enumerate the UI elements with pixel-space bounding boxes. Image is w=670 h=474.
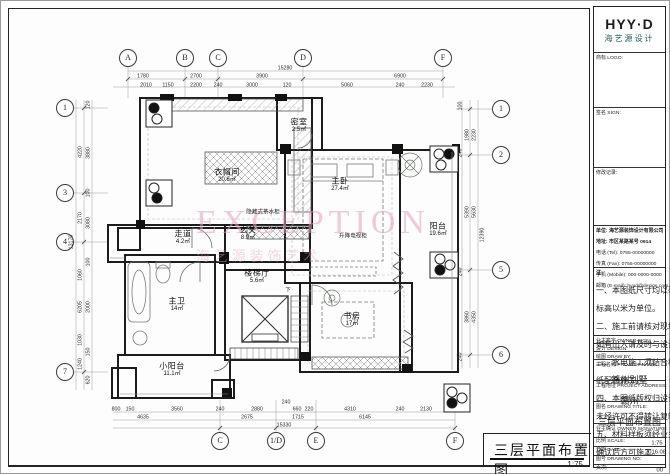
tb-company-lines: 单位: 海艺源装饰设计有限公司地址: 市区某路某号 0914 [596,227,663,249]
room-label: 阳台 19.6㎡ [428,221,449,238]
dim-label: 240 [457,268,463,277]
dim-label: 12390 [479,228,485,243]
tb-sign-row: 签名 SIGN: [594,108,665,168]
room-area: 20.6㎡ [216,177,238,184]
grid-bubble: E [307,432,325,450]
room-area: 5.6㎡ [246,278,268,285]
grid-bubble: C [209,49,227,67]
dim-label: 1150 [162,82,173,88]
dim-label: 2230 [471,129,477,141]
room-label: 衣帽间 20.6㎡ [214,167,240,184]
dim-label: 660 [293,406,302,412]
room-name: 楼梯厅 [244,268,270,277]
grid-bubble: D [294,49,312,67]
tb-project-name: 工程名称 PROJECT NAME: 赣州别墅 [594,360,665,381]
room-name: 走道 [175,229,192,238]
logo-text: HYY·D [596,16,663,32]
room-name: 密室 [291,117,308,126]
dim-label: 220 [305,406,314,412]
dim-label: 15330 [277,422,292,428]
dim-label: 6900 [394,73,406,79]
dim-label: 4220 [77,146,83,158]
dim-label: 3560 [171,406,183,412]
dim-label: 240 [396,82,405,88]
dim-label: 120 [283,82,292,88]
plan-title-box: 三层平面布置图 1:75 [483,433,591,467]
dim-label: 100 [457,102,463,111]
grid-bubble: A [119,49,137,67]
dim-label: 4635 [137,414,149,420]
tb-owner-sign-row: 业主签字 OWNER SIGN: [594,336,665,344]
dim-label: 2675 [241,414,253,420]
dim-label: 2010 [140,82,152,88]
room-name: 书房 [344,311,361,320]
dim-label: 5060 [341,82,353,88]
room-name: 玄关 [240,225,257,234]
dim-label: 2130 [420,406,432,412]
tb-contact: 单位: 海艺源装饰设计有限公司地址: 市区某路某号 0914 电话 (Tel):… [594,226,665,268]
room-name: 小阳台 [159,361,185,370]
dim-label: 2200 [190,82,202,88]
dim-label: 15280 [278,65,293,71]
room-area: 11.1㎡ [161,371,183,378]
room-label: 书房 17㎡ [344,311,361,328]
room-area: 27.4㎡ [331,186,349,193]
dim-label: 100 [85,189,91,198]
watermark-cjk: 海 艺 源 装 饰 艺 术 [196,246,436,266]
drawing-sheet: EXCEPTION 海 艺 源 装 饰 艺 术 ABCDFC1/DEF13471… [0,0,670,474]
dim-label: 1780 [137,73,149,79]
room-name: 衣帽间 [214,167,240,176]
room-label: 楼梯厅 5.6㎡ [244,268,270,285]
room-area: 4.2㎡ [176,239,190,246]
dim-label: 1715 [292,414,304,420]
dim-label: 150 [85,348,91,357]
dim-label: 620 [85,376,91,385]
grid-bubble: F [434,49,452,67]
dim-label: 2880 [251,406,263,412]
dim-label: 5630 [471,206,477,218]
dim-label: 240 [457,149,463,158]
dim-label: 3860 [464,311,470,323]
dim-label: 3880 [85,147,91,159]
room-label: 主卫 14㎡ [169,296,186,313]
tb-drawing-title: 图名 DRAWING TITLE: 三层平面布置图 [594,402,665,424]
grid-bubble: 3 [56,184,74,202]
dim-label: 240 [282,399,291,405]
grid-bubble: 5 [492,261,510,279]
page-value: 00 [657,466,663,472]
room-label: 小阳台 11.1㎡ [159,361,185,378]
tb-draw-row: 绘图 DRAW BY: [594,352,665,360]
tb-owner-confirm: 业主确认 OWNER SIGNATURE: [594,424,665,438]
grid-bubble: 1/D [267,432,285,450]
date-value: 2016.08 [645,448,666,454]
grid-bubble: 1 [56,99,74,117]
grid-bubble: C [211,432,229,450]
dim-label: 240 [457,353,463,362]
room-area: 17㎡ [345,321,359,328]
grid-bubble: B [176,49,194,67]
room-name: 主卫 [169,296,186,305]
dim-label: 3000 [246,82,258,88]
dim-label: 4310 [344,406,356,412]
grid-bubble: 7 [56,363,74,381]
grid-bubble: 2 [492,146,510,164]
plan-title-scale: 1:75 [567,460,583,469]
tb-notes: 注: 一、本图纸尺寸均以毫米为单位,标高以米为单位。二、施工前请核对现场实际尺寸… [594,268,665,336]
watermark-text: EXCEPTION [178,204,448,242]
dim-label: 6145 [359,414,371,420]
dim-label: 5390 [464,206,470,218]
tb-design-row: 设计 DESIGN: [594,344,665,352]
room-area: 19.6㎡ [429,231,447,238]
dim-label: 6205 [77,301,83,313]
dim-label: 150 [126,406,135,412]
dim-label: 800 [112,406,121,412]
room-area: 2.5㎡ [292,127,306,134]
dim-label: 240 [216,406,225,412]
tb-page-row: 页次: 00 [594,465,665,474]
room-label: 密室 2.5㎡ [291,117,308,134]
room-label: 走道 4.2㎡ [175,229,192,246]
dim-label: 1060 [77,269,83,281]
dim-label: 100 [85,258,91,267]
dim-label: 1240 [77,358,83,370]
dim-label: 3900 [256,73,268,79]
dim-label: 1030 [77,334,83,346]
dim-label: 1980 [464,129,470,141]
room-name: 主卧 [330,176,351,185]
dim-label: 4350 [471,311,477,323]
tb-project-addr: 工程地址 PROJECT ADDRESS: 赣州 [594,381,665,402]
scale-value: 1:75 [652,439,663,445]
logo-subtitle: 海艺源设计 [596,33,663,44]
company-logo: HYY·D 海艺源设计 [594,7,665,53]
room-label: 玄关 8.9㎡ [240,225,257,242]
dim-label: 3080 [85,217,91,229]
plan-annotation: 升降电视柜 [339,232,367,240]
tb-logo-row: 商标 LOGO: [594,53,665,108]
dim-label: 2700 [190,73,202,79]
grid-bubble: 1 [492,100,510,118]
dim-label: 240 [396,406,405,412]
title-block: HYY·D 海艺源设计 商标 LOGO: 签名 SIGN: 修改记录: 单位: … [593,6,666,468]
dim-label: 2230 [421,82,433,88]
grid-bubble: F [446,432,464,450]
tb-revision-row: 修改记录: [594,168,665,226]
room-label: 主卧 27.4㎡ [330,176,351,193]
dim-label: 120 [85,101,91,110]
plan-annotation: 下 [285,286,291,294]
dim-label: 2000 [85,301,91,313]
dim-label: 13170 [68,235,74,250]
room-name: 阳台 [428,221,449,230]
dim-label: 240 [214,82,223,88]
room-area: 8.9㎡ [241,235,255,242]
plan-annotation: 隐藏式茶水柜 [246,208,280,216]
room-area: 14㎡ [170,306,184,313]
dim-label: 2170 [77,212,83,224]
grid-bubble: 6 [492,346,510,364]
